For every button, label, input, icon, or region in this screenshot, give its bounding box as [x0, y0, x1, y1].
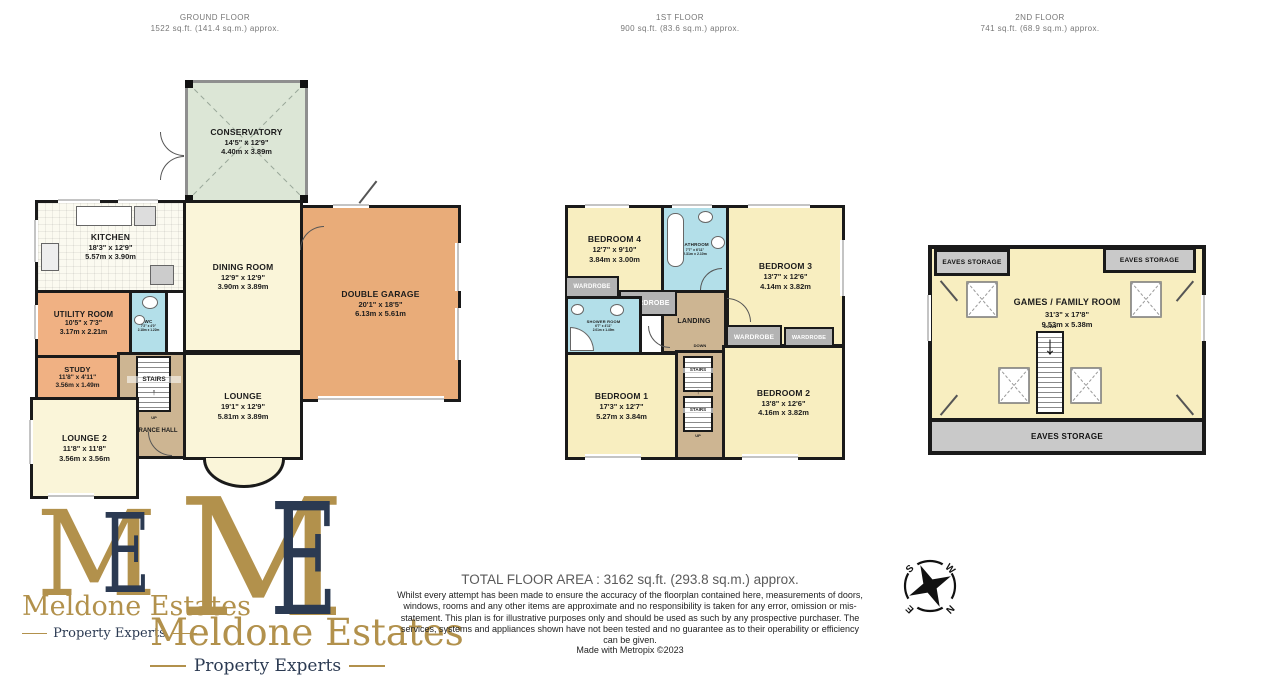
bath-icon [667, 213, 684, 267]
window [925, 295, 931, 341]
window [748, 202, 810, 208]
stairs-label: STAIRS [683, 368, 713, 373]
room-dims-metric: 3.90m x 3.89m [218, 282, 269, 291]
room-dims-imperial: 12'7" x 9'10" [592, 245, 636, 254]
room-lounge2: LOUNGE 2 11'8" x 11'8" 3.56m x 3.56m [30, 397, 139, 499]
stairs-label: STAIRS [683, 408, 713, 413]
window [585, 454, 641, 460]
window [27, 420, 33, 464]
skylight-icon [998, 367, 1030, 404]
window [58, 197, 100, 203]
room-name: BEDROOM 2 [757, 388, 810, 399]
toilet-icon [711, 236, 725, 249]
window [585, 202, 629, 208]
eaves-storage-box: EAVES STORAGE [934, 249, 1010, 276]
kitchen-counter-icon [134, 206, 156, 226]
room-dims-metric: 4.40m x 3.89m [221, 147, 272, 156]
wall-post [300, 80, 308, 88]
room-name: CONSERVATORY [210, 127, 282, 138]
hob-icon [41, 243, 59, 271]
first-floor-header: 1ST FLOOR 900 sq.ft. (83.6 sq.m.) approx… [580, 12, 780, 34]
room-dims-metric: 3.17m x 2.21m [60, 329, 107, 338]
eaves-storage-box: EAVES STORAGE [928, 418, 1206, 455]
room-dims-imperial: 12'9" x 12'9" [221, 273, 265, 282]
window [118, 197, 158, 203]
room-dims-metric: 2.18m x 1.22m [138, 328, 160, 332]
room-dims-metric: 4.16m x 3.82m [758, 408, 809, 417]
window [672, 202, 712, 208]
total-floor-area: TOTAL FLOOR AREA : 3162 sq.ft. (293.8 sq… [400, 572, 860, 587]
room-dims-metric: 5.81m x 3.89m [218, 412, 269, 421]
ground-floor-area: 1522 sq.ft. (141.4 sq.m.) approx. [115, 23, 315, 34]
window [32, 305, 38, 339]
first-floor-title: 1ST FLOOR [580, 12, 780, 23]
tagline-dash [349, 665, 385, 667]
room-utility: UTILITY ROOM 10'5" x 7'3" 3.17m x 2.21m [35, 290, 132, 358]
room-dims-imperial: 11'8" x 4'11" [59, 374, 96, 382]
tagline-dash [22, 633, 47, 635]
door-arc [160, 132, 184, 156]
toilet-icon [142, 296, 158, 309]
door-opening [333, 202, 369, 208]
disclaimer-text: Whilst every attempt has been made to en… [395, 590, 865, 646]
skylight-icon [1070, 367, 1102, 404]
room-name: BEDROOM 1 [595, 391, 648, 402]
room-dims-imperial: 11'8" x 11'8" [63, 444, 106, 453]
room-name: LOUNGE [224, 391, 262, 402]
window [840, 240, 846, 296]
room-dims-imperial: 13'8" x 12'6" [761, 399, 805, 408]
eaves-storage-box: EAVES STORAGE [1103, 247, 1196, 273]
room-dims-metric: 3.56m x 1.49m [55, 382, 99, 390]
room-shower: SHOWER ROOM 6'7" x 4'11" 2.01m x 1.49m [565, 296, 642, 355]
room-dining: DINING ROOM 12'9" x 12'9" 3.90m x 3.89m [183, 200, 303, 353]
door-arc [648, 326, 670, 348]
room-kitchen: KITCHEN 18'3" x 12'9" 5.57m x 3.90m [35, 200, 186, 293]
compass: S W E N [898, 550, 962, 622]
down-arrow-icon: ↓ [1038, 331, 1062, 360]
appliance-icon [150, 265, 174, 285]
room-conservatory: CONSERVATORY 14'5" x 12'9" 4.40m x 3.89m [185, 80, 308, 203]
up-label: UP [683, 434, 713, 438]
logo-tagline: Property Experts [53, 626, 166, 641]
room-name: DINING ROOM [213, 262, 274, 273]
window [742, 454, 798, 460]
window [455, 243, 461, 291]
room-dims-metric: 6.13m x 5.61m [355, 309, 406, 318]
ground-stairs [136, 356, 171, 412]
logo-tagline-row: Property Experts [150, 656, 385, 676]
room-study: STUDY 11'8" x 4'11" 3.56m x 1.49m [35, 355, 120, 400]
second-floor-title: 2ND FLOOR [940, 12, 1140, 23]
room-dims-imperial: 19'1" x 12'9" [221, 402, 265, 411]
room-name: UTILITY ROOM [54, 310, 114, 320]
second-floor-area: 741 sq.ft. (68.9 sq.m.) approx. [940, 23, 1140, 34]
room-wc: WC 7'2" x 4'0" 2.18m x 1.22m [129, 290, 168, 361]
room-name: BEDROOM 4 [588, 234, 641, 245]
room-dims-imperial: 14'5" x 12'9" [224, 138, 268, 147]
floorplan-canvas: GROUND FLOOR 1522 sq.ft. (141.4 sq.m.) a… [0, 0, 1280, 680]
sink-icon [571, 304, 584, 315]
room-dims-metric: 2.31m x 2.10m [683, 252, 707, 256]
window [455, 308, 461, 360]
landing-label: LANDING [677, 317, 710, 326]
window [32, 220, 38, 262]
wardrobe-box: WARDROBE [565, 276, 619, 298]
up-arrow-icon: ↑ [146, 388, 162, 398]
room-dims-imperial: 18'3" x 12'9" [88, 243, 132, 252]
room-dims-metric: 2.01m x 1.49m [593, 328, 615, 332]
room-dims-metric: 5.57m x 3.90m [85, 252, 136, 261]
logo-tagline: Property Experts [194, 656, 341, 676]
toilet-icon [610, 304, 624, 316]
down-label: DOWN [1036, 325, 1064, 329]
stairs-label: STAIRS [127, 376, 181, 383]
wall-post [185, 80, 193, 88]
garage-door [318, 396, 444, 402]
room-dims-metric: 5.27m x 3.84m [596, 412, 647, 421]
room-dims-metric: 9.53m x 5.38m [932, 320, 1202, 329]
skylight-icon [1130, 281, 1162, 318]
ground-floor-header: GROUND FLOOR 1522 sq.ft. (141.4 sq.m.) a… [115, 12, 315, 34]
up-arrow-icon: ↑ [690, 388, 706, 397]
sink-icon [134, 315, 145, 325]
kitchen-sink-icon [76, 206, 132, 226]
room-garage: DOUBLE GARAGE 20'1" x 18'5" 6.13m x 5.61… [300, 205, 461, 402]
down-label: DOWN [682, 344, 718, 348]
room-bedroom1: BEDROOM 1 17'3" x 12'7" 5.27m x 3.84m [565, 352, 678, 460]
sink-icon [698, 211, 713, 223]
first-stairs-up [683, 396, 713, 432]
metropix-credit: Made with Metropix ©2023 [395, 645, 865, 656]
room-name: KITCHEN [91, 232, 130, 243]
room-dims-metric: 3.56m x 3.56m [59, 454, 110, 463]
shower-icon [570, 327, 594, 351]
door-line [359, 181, 377, 204]
room-dims-imperial: 10'5" x 7'3" [65, 320, 102, 329]
room-dims-metric: 4.14m x 3.82m [760, 282, 811, 291]
tagline-dash [150, 665, 186, 667]
logo-name: Meldone Estates [150, 611, 385, 654]
room-lounge: LOUNGE 19'1" x 12'9" 5.81m x 3.89m [183, 352, 303, 460]
skylight-icon [966, 281, 998, 318]
room-dims-imperial: 17'3" x 12'7" [599, 402, 643, 411]
room-dims-imperial: 20'1" x 18'5" [358, 300, 402, 309]
room-name: LOUNGE 2 [62, 433, 107, 444]
room-dims-metric: 3.84m x 3.00m [589, 255, 640, 264]
room-name: STUDY [64, 365, 90, 375]
room-dims-imperial: 13'7" x 12'6" [763, 272, 807, 281]
ground-floor-title: GROUND FLOOR [115, 12, 315, 23]
window [1201, 295, 1207, 341]
first-floor-area: 900 sq.ft. (83.6 sq.m.) approx. [580, 23, 780, 34]
room-name: BEDROOM 3 [759, 261, 812, 272]
up-label: UP [146, 416, 162, 420]
room-name: DOUBLE GARAGE [341, 289, 419, 300]
room-bedroom2: BEDROOM 2 13'8" x 12'6" 4.16m x 3.82m [722, 345, 845, 460]
logo-large: M E Meldone Estates Property Experts [150, 478, 385, 673]
door-arc [160, 156, 184, 180]
second-floor-header: 2ND FLOOR 741 sq.ft. (68.9 sq.m.) approx… [940, 12, 1140, 34]
